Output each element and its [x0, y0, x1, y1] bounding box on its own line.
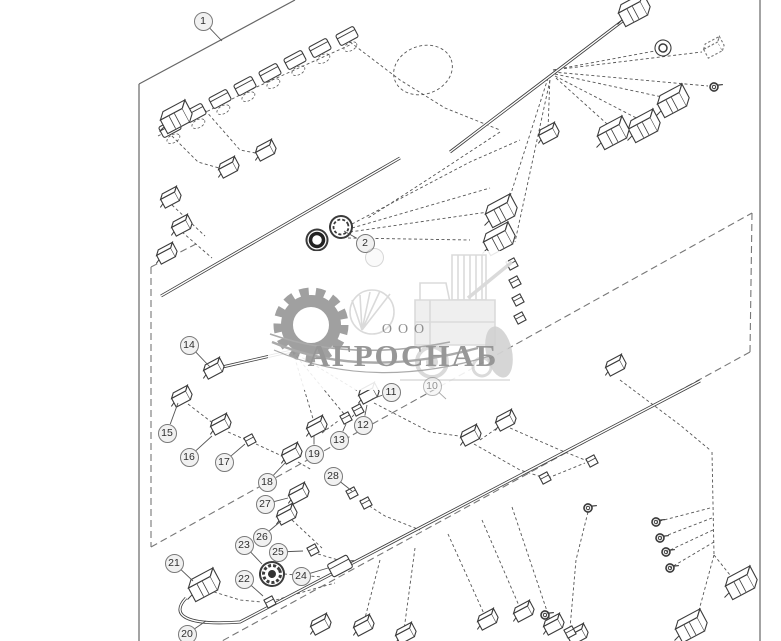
connector-box	[198, 357, 226, 381]
leader-line	[310, 568, 328, 573]
connector-box	[250, 139, 278, 163]
watermark-prefix: ООО	[382, 322, 430, 337]
connector-box	[600, 354, 628, 378]
connector-ring	[583, 500, 598, 513]
connector-box	[533, 122, 561, 146]
connector-clip	[233, 76, 261, 104]
connector-box	[271, 503, 299, 527]
leader-line	[365, 405, 367, 416]
connector-ring	[661, 544, 676, 557]
leader-line	[210, 28, 222, 41]
connector-box	[472, 608, 500, 632]
leader-line	[196, 436, 212, 451]
connector-box	[213, 156, 241, 180]
connector-sq	[307, 544, 319, 556]
leader-line	[181, 570, 193, 581]
callout-balloon-11[interactable]: 11	[382, 383, 401, 402]
callout-balloon-22[interactable]: 22	[235, 570, 254, 589]
leader-line	[343, 424, 346, 431]
wiring-harness-diagram: ООО АГРОСНАБ	[0, 0, 781, 641]
connector-box	[305, 613, 333, 637]
watermark: ООО АГРОСНАБ	[268, 251, 517, 390]
connector-sq	[509, 276, 521, 288]
callout-balloon-26[interactable]: 26	[253, 528, 272, 547]
leader-line	[196, 352, 210, 367]
leader-line	[439, 392, 446, 399]
leader-line	[231, 444, 245, 456]
leader-line	[251, 585, 263, 596]
connector-box	[155, 186, 183, 210]
leader-line	[251, 552, 262, 564]
leader-line	[287, 551, 303, 552]
connector-box	[283, 482, 311, 506]
callout-balloon-hidden[interactable]	[365, 248, 384, 267]
connector-box	[390, 622, 418, 641]
callout-balloon-13[interactable]: 13	[330, 431, 349, 450]
connector-sq	[340, 412, 352, 424]
connector-ring2	[326, 212, 356, 242]
callout-balloon-23[interactable]: 23	[235, 536, 254, 555]
callout-balloon-21[interactable]: 21	[165, 554, 184, 573]
connector-big	[589, 116, 632, 153]
leader-line	[269, 521, 281, 531]
connector-box	[205, 413, 233, 437]
connector-sq	[244, 434, 256, 446]
connector-ring	[665, 560, 680, 573]
connector-big	[667, 609, 710, 641]
connector-box	[151, 242, 179, 266]
connector-ghost	[702, 36, 726, 58]
connector-box	[301, 415, 329, 439]
callout-balloon-1[interactable]: 1	[194, 12, 213, 31]
connector-clip	[258, 63, 286, 91]
callout-balloon-28[interactable]: 28	[324, 467, 343, 486]
connector-ring	[655, 530, 670, 543]
connector-box	[455, 424, 483, 448]
connector-sq	[586, 455, 598, 467]
connector-big	[152, 100, 195, 137]
connector-sq	[352, 404, 364, 416]
watermark-company-name: АГРОСНАБ	[308, 338, 499, 373]
connector-ring	[709, 79, 724, 92]
callout-balloon-18[interactable]: 18	[258, 473, 277, 492]
connector-sq	[264, 596, 276, 608]
connector-box	[508, 600, 536, 624]
connector-box	[348, 614, 376, 638]
parts-diagram-page: ООО АГРОСНАБ 121011121314151617181920212…	[0, 0, 781, 641]
callout-balloon-12[interactable]: 12	[354, 416, 373, 435]
connector-clip	[208, 89, 236, 117]
callout-balloon-25[interactable]: 25	[269, 543, 288, 562]
connector-flash	[327, 553, 357, 578]
connector-cap	[303, 226, 331, 254]
callout-balloon-17[interactable]: 17	[215, 453, 234, 472]
callout-balloon-24[interactable]: 24	[292, 567, 311, 586]
connector-sq	[360, 497, 372, 509]
callout-balloon-10[interactable]: 10	[423, 377, 442, 396]
leader-line	[340, 482, 352, 491]
leader-line	[274, 463, 285, 475]
callout-balloon-16[interactable]: 16	[180, 448, 199, 467]
callout-balloon-14[interactable]: 14	[180, 336, 199, 355]
connector-sq	[346, 487, 358, 499]
connector-box	[166, 214, 194, 238]
connector-sq	[514, 312, 526, 324]
leader-line	[274, 498, 288, 502]
callout-balloon-19[interactable]: 19	[305, 445, 324, 464]
connector-ring	[651, 514, 666, 527]
callout-balloon-20[interactable]: 20	[178, 625, 197, 641]
connector-sq	[512, 294, 524, 306]
connector-sq	[539, 472, 551, 484]
callout-balloon-27[interactable]: 27	[256, 495, 275, 514]
callout-balloon-15[interactable]: 15	[158, 424, 177, 443]
connector-big	[717, 566, 760, 603]
